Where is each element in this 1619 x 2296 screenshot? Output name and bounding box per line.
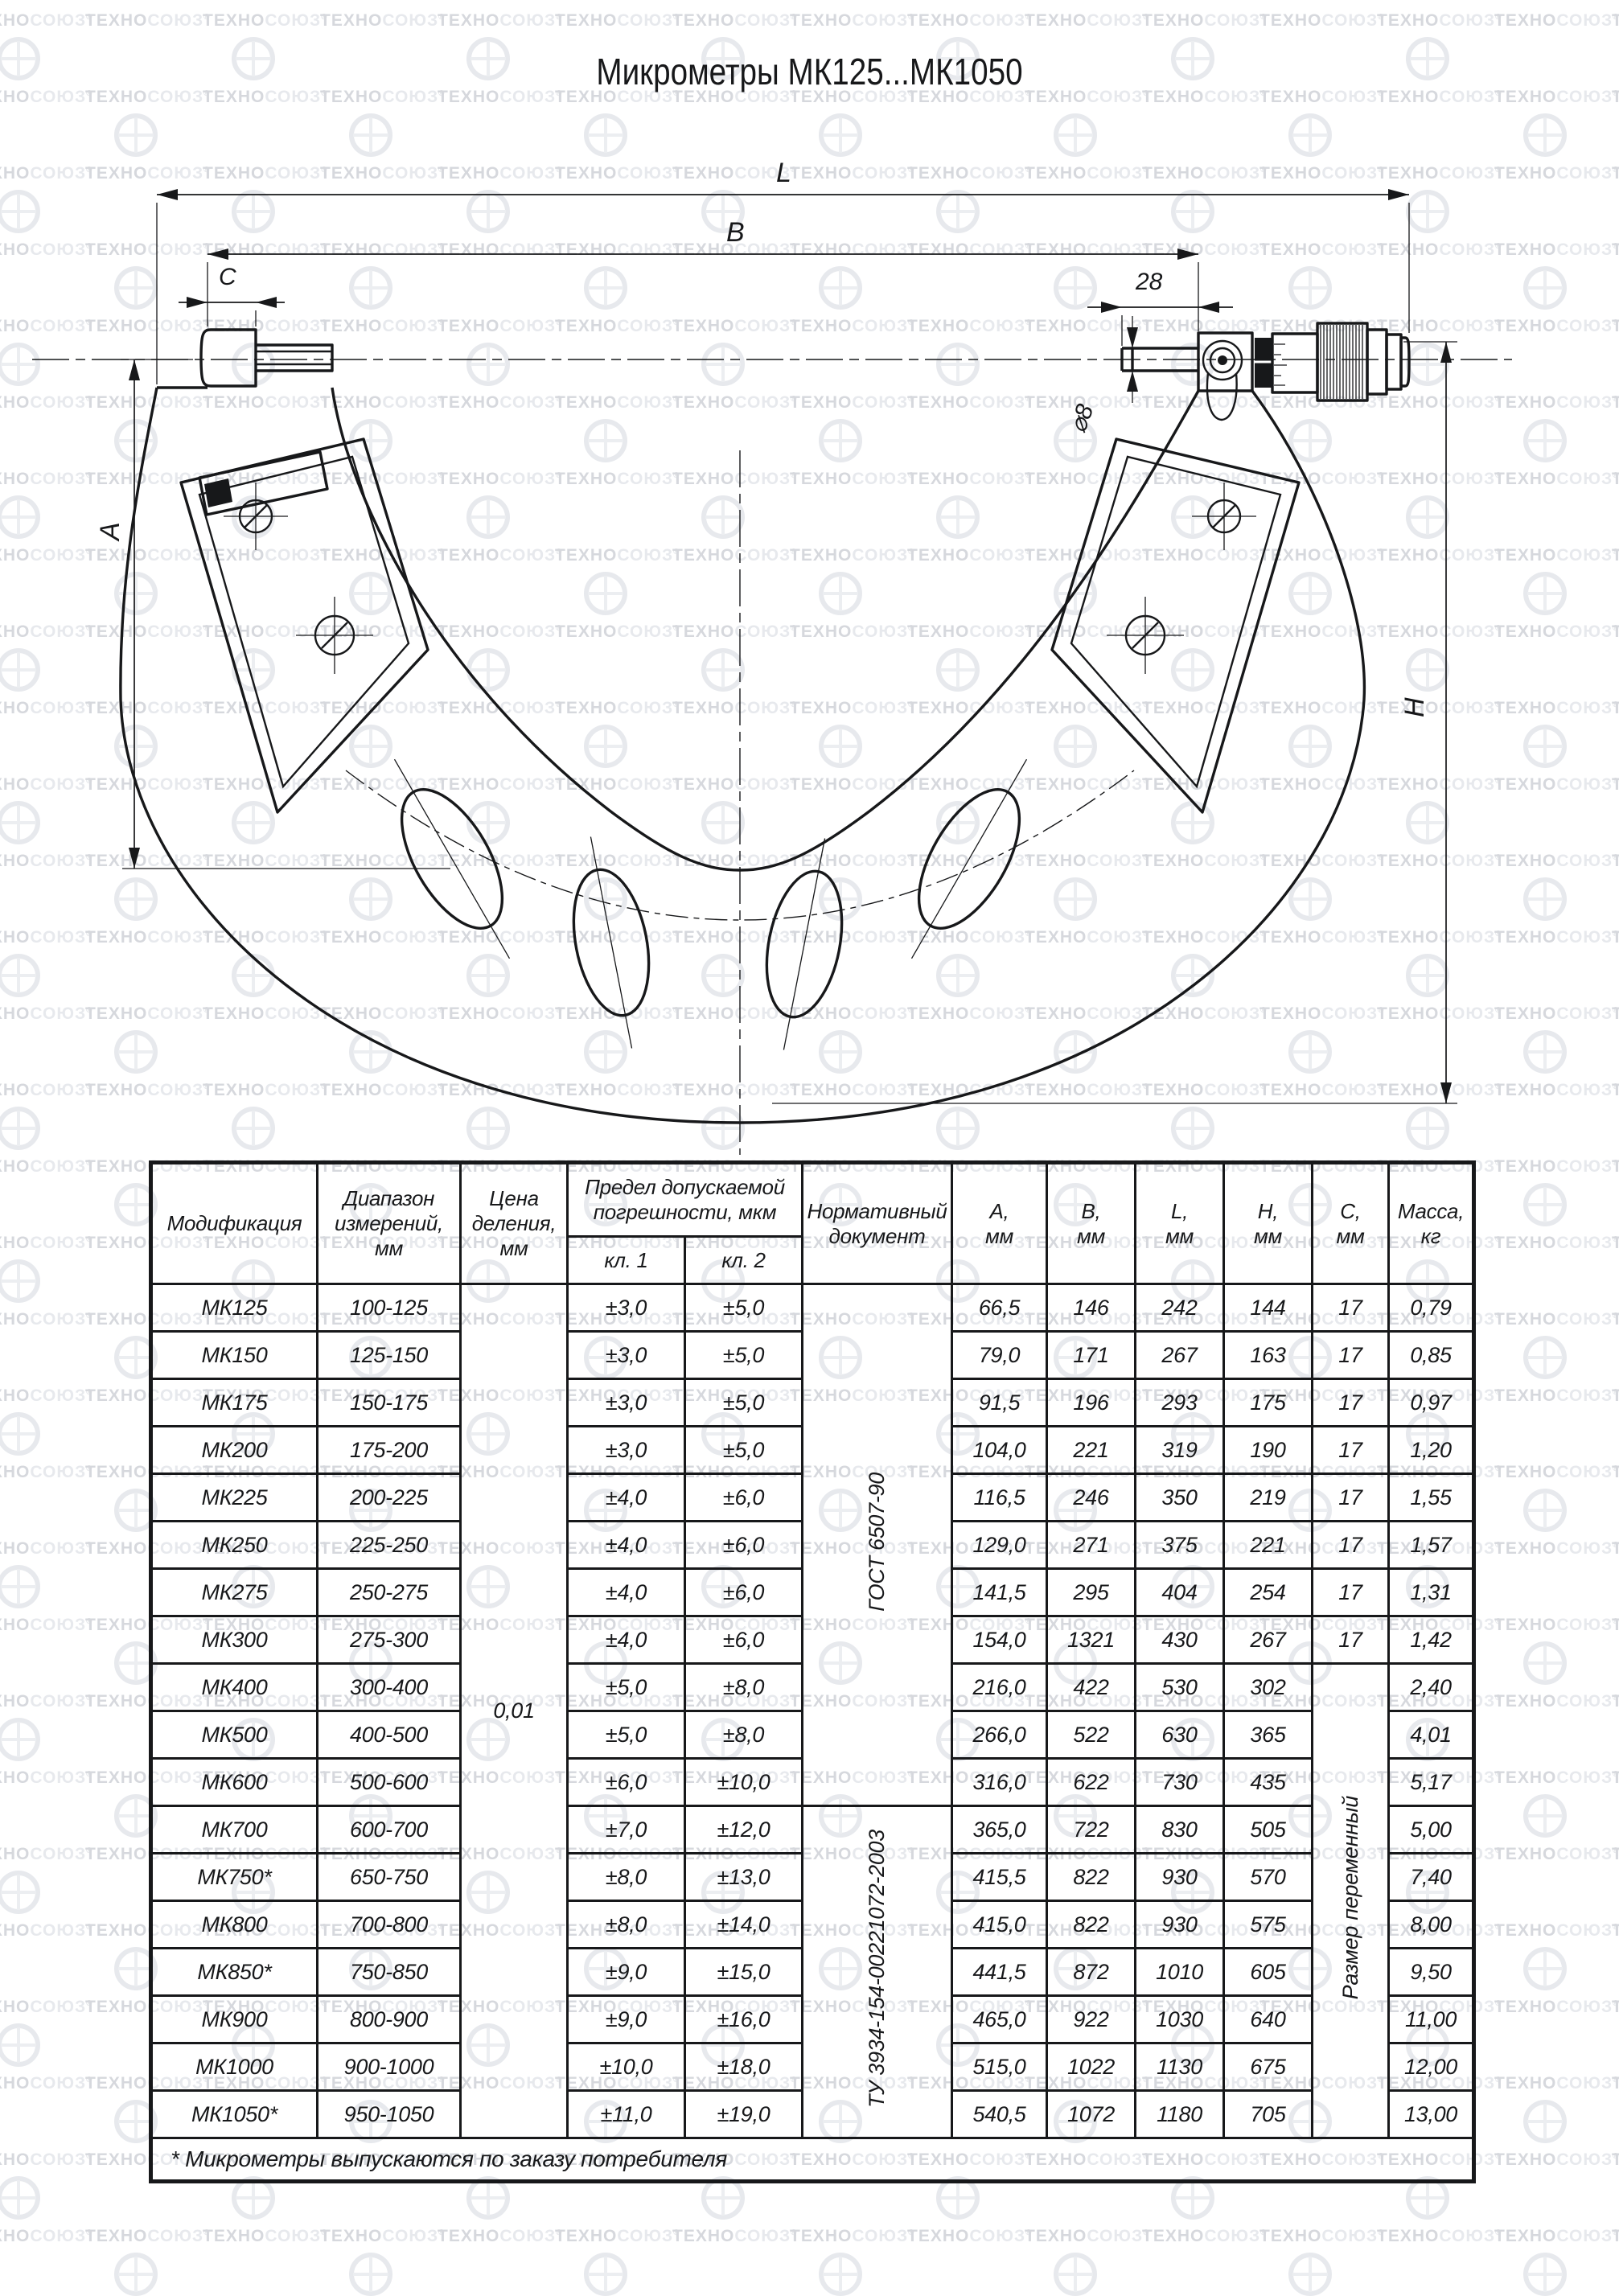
micrometer-technical-drawing: L B C 28 ⌀8 A H	[0, 113, 1619, 1166]
cell-class1: ±8,0	[568, 1901, 685, 1949]
cell-h: 605	[1224, 1949, 1313, 1996]
cell-class2: ±6,0	[685, 1569, 803, 1616]
cell-b: 822	[1047, 1854, 1136, 1901]
cell-model: МК275	[151, 1569, 318, 1616]
watermark-text: ТЕХНОСОЮЗ®	[85, 2227, 211, 2246]
cell-model: МК750*	[151, 1854, 318, 1901]
cell-b: 171	[1047, 1332, 1136, 1379]
cell-h: 175	[1224, 1379, 1313, 1427]
cell-h: 570	[1224, 1854, 1313, 1901]
watermark-text: ТЕХНОСОЮЗ®	[1494, 1310, 1619, 1329]
cell-l: 350	[1136, 1474, 1224, 1522]
watermark-text: ТЕХНОСОЮЗ®	[1494, 1616, 1619, 1635]
left-plate-inner	[199, 457, 409, 787]
table-row: МК700600-700±7,0±12,0ТУ 3934-154-0022107…	[151, 1806, 1474, 1854]
cell-model: МК1000	[151, 2043, 318, 2091]
watermark-globe-icon	[819, 2253, 862, 2296]
watermark-text: ТЕХНОСОЮЗ®	[320, 11, 446, 31]
thimble-collar	[1367, 330, 1387, 394]
watermark-globe-icon	[0, 37, 40, 80]
cell-range: 600-700	[318, 1806, 461, 1854]
cell-h: 163	[1224, 1332, 1313, 1379]
col-header-class1: кл. 1	[568, 1237, 685, 1284]
cell-h: 435	[1224, 1759, 1313, 1806]
cell-class2: ±8,0	[685, 1711, 803, 1759]
watermark-text: ТЕХНОСОЮЗ®	[1612, 1234, 1619, 1253]
cell-range: 750-850	[318, 1949, 461, 1996]
cell-range: 100-125	[318, 1284, 461, 1332]
frame-inner-contour	[332, 388, 1198, 870]
cell-a: 116,5	[952, 1474, 1047, 1522]
cell-l: 1130	[1136, 2043, 1224, 2091]
watermark-text: ТЕХНОСОЮЗ®	[1494, 2150, 1619, 2170]
watermark-text: ТЕХНОСОЮЗ®	[0, 2227, 93, 2246]
cell-h: 302	[1224, 1664, 1313, 1711]
watermark-globe-icon	[0, 1565, 40, 1608]
watermark-text: ТЕХНОСОЮЗ®	[555, 2227, 680, 2246]
cell-mass: 2,40	[1389, 1664, 1474, 1711]
dim-label-B: B	[726, 217, 745, 248]
watermark-text: ТЕХНОСОЮЗ®	[1612, 1310, 1619, 1329]
cell-mass: 4,01	[1389, 1711, 1474, 1759]
watermark-globe-icon	[0, 1412, 40, 1456]
watermark-text: ТЕХНОСОЮЗ®	[0, 2150, 93, 2170]
cell-range: 225-250	[318, 1522, 461, 1569]
watermark-globe-icon	[1523, 1336, 1567, 1379]
cell-l: 1180	[1136, 2091, 1224, 2138]
cell-range: 900-1000	[318, 2043, 461, 2091]
cell-l: 404	[1136, 1569, 1224, 1616]
frame-hole	[880, 741, 1059, 977]
cell-c: 17	[1313, 1474, 1389, 1522]
cell-a: 515,0	[952, 2043, 1047, 2091]
watermark-text: ТЕХНОСОЮЗ®	[0, 2074, 93, 2093]
watermark-text: ТЕХНОСОЮЗ®	[1494, 2074, 1619, 2093]
cell-range: 800-900	[318, 1996, 461, 2043]
watermark-text: ТЕХНОСОЮЗ®	[203, 2227, 328, 2246]
watermark-text: ТЕХНОСОЮЗ®	[1142, 11, 1268, 31]
watermark-text: ТЕХНОСОЮЗ®	[0, 1463, 93, 1482]
watermark-text: ТЕХНОСОЮЗ®	[1494, 1463, 1619, 1482]
cell-class1: ±7,0	[568, 1806, 685, 1854]
dim-label-A: A	[95, 522, 125, 542]
cell-range: 300-400	[318, 1664, 461, 1711]
watermark-globe-icon	[0, 1718, 40, 1761]
cell-h: 675	[1224, 2043, 1313, 2091]
lock-lever	[1203, 341, 1242, 420]
watermark-text: ТЕХНОСОЮЗ®	[0, 1310, 93, 1329]
cell-l: 242	[1136, 1284, 1224, 1332]
cell-mass: 1,57	[1389, 1522, 1474, 1569]
cell-model: МК150	[151, 1332, 318, 1379]
cell-c: 17	[1313, 1332, 1389, 1379]
watermark-text: ТЕХНОСОЮЗ®	[438, 2227, 563, 2246]
cell-range: 650-750	[318, 1854, 461, 1901]
cell-a: 415,5	[952, 1854, 1047, 1901]
cell-h: 221	[1224, 1522, 1313, 1569]
frame-hole	[749, 832, 860, 1057]
cell-mass: 11,00	[1389, 1996, 1474, 2043]
cell-model: МК300	[151, 1616, 318, 1664]
watermark-text: ТЕХНОСОЮЗ®	[907, 11, 1033, 31]
cell-range: 175-200	[318, 1427, 461, 1474]
watermark-globe-icon	[0, 1259, 40, 1303]
cell-a: 365,0	[952, 1806, 1047, 1854]
cell-model: МК200	[151, 1427, 318, 1474]
cell-b: 146	[1047, 1284, 1136, 1332]
watermark-globe-icon	[1054, 2253, 1097, 2296]
cell-class1: ±11,0	[568, 2091, 685, 2138]
cell-class1: ±4,0	[568, 1569, 685, 1616]
cell-a: 216,0	[952, 1664, 1047, 1711]
col-header-mass: Масса, кг	[1389, 1163, 1474, 1284]
cell-class1: ±3,0	[568, 1379, 685, 1427]
cell-mass: 8,00	[1389, 1901, 1474, 1949]
cell-l: 930	[1136, 1854, 1224, 1901]
anvil-rod-lines	[256, 351, 332, 364]
watermark-text: ТЕХНОСОЮЗ®	[1612, 2074, 1619, 2093]
ratchet-end-cap	[1401, 338, 1409, 386]
frame-hole	[556, 830, 667, 1055]
frame-outer-contour	[121, 388, 1365, 1123]
cell-class2: ±5,0	[685, 1427, 803, 1474]
watermark-text: ТЕХНОСОЮЗ®	[438, 11, 563, 31]
watermark-text: ТЕХНОСОЮЗ®	[1025, 11, 1150, 31]
cell-class1: ±3,0	[568, 1332, 685, 1379]
watermark-text: ТЕХНОСОЮЗ®	[0, 1234, 93, 1253]
cell-a: 316,0	[952, 1759, 1047, 1806]
cell-mass: 0,79	[1389, 1284, 1474, 1332]
cell-b: 522	[1047, 1711, 1136, 1759]
col-header-b: В, мм	[1047, 1163, 1136, 1284]
thimble	[1317, 323, 1367, 400]
table-header: Модификация Диапазон измерений, мм Цена …	[151, 1163, 1474, 1284]
cell-c: 17	[1313, 1379, 1389, 1427]
cell-class2: ±8,0	[685, 1664, 803, 1711]
cell-a: 129,0	[952, 1522, 1047, 1569]
cell-mass: 9,50	[1389, 1949, 1474, 1996]
watermark-text: ТЕХНОСОЮЗ®	[320, 2227, 446, 2246]
cell-class2: ±16,0	[685, 1996, 803, 2043]
watermark-globe-icon	[1523, 1947, 1567, 1990]
col-header-document: Нормативный документ	[803, 1163, 952, 1284]
merged-cell-division: 0,01	[461, 1284, 568, 2138]
cell-a: 266,0	[952, 1711, 1047, 1759]
table-body: МК125100-1250,01±3,0±5,0ГОСТ 6507-9066,5…	[151, 1284, 1474, 2138]
cell-c: 17	[1313, 1616, 1389, 1664]
watermark-text: ТЕХНОСОЮЗ®	[0, 1539, 93, 1559]
watermark-text: ТЕХНОСОЮЗ®	[1494, 1234, 1619, 1253]
cell-class1: ±10,0	[568, 2043, 685, 2091]
anvil-rod	[256, 345, 332, 371]
cell-mass: 1,55	[1389, 1474, 1474, 1522]
cell-l: 293	[1136, 1379, 1224, 1427]
cell-b: 822	[1047, 1901, 1136, 1949]
dim-label-spindle-dia: ⌀8	[1065, 400, 1099, 436]
brand-logo-mark	[204, 479, 232, 507]
watermark-text: ТЕХНОСОЮЗ®	[0, 1845, 93, 1864]
cell-b: 271	[1047, 1522, 1136, 1569]
cell-h: 705	[1224, 2091, 1313, 2138]
table-row: МК125100-1250,01±3,0±5,0ГОСТ 6507-9066,5…	[151, 1284, 1474, 1332]
watermark-globe-icon	[1523, 2253, 1567, 2296]
cell-a: 441,5	[952, 1949, 1047, 1996]
cell-class2: ±10,0	[685, 1759, 803, 1806]
cell-b: 872	[1047, 1949, 1136, 1996]
cell-range: 400-500	[318, 1711, 461, 1759]
watermark-text: ТЕХНОСОЮЗ®	[1494, 1998, 1619, 2017]
cell-b: 422	[1047, 1664, 1136, 1711]
cell-model: МК900	[151, 1996, 318, 2043]
cell-l: 630	[1136, 1711, 1224, 1759]
cell-mass: 5,00	[1389, 1806, 1474, 1854]
watermark-globe-icon	[114, 2253, 158, 2296]
thimble-knurling	[1321, 325, 1362, 399]
cell-model: МК1050*	[151, 2091, 318, 2138]
cell-class1: ±6,0	[568, 1759, 685, 1806]
watermark-text: ТЕХНОСОЮЗ®	[0, 1386, 93, 1406]
cell-h: 365	[1224, 1711, 1313, 1759]
cell-range: 700-800	[318, 1901, 461, 1949]
cell-mass: 12,00	[1389, 2043, 1474, 2091]
watermark-text: ТЕХНОСОЮЗ®	[1612, 88, 1619, 107]
watermark-text: ТЕХНОСОЮЗ®	[1612, 1845, 1619, 1864]
cell-model: МК800	[151, 1901, 318, 1949]
cell-h: 267	[1224, 1616, 1313, 1664]
cell-class1: ±3,0	[568, 1427, 685, 1474]
cell-a: 104,0	[952, 1427, 1047, 1474]
watermark-text: ТЕХНОСОЮЗ®	[907, 2227, 1033, 2246]
col-header-h: Н, мм	[1224, 1163, 1313, 1284]
watermark-globe-icon	[1523, 1489, 1567, 1532]
merged-cell-c-variable: Размер переменный	[1313, 1664, 1389, 2138]
watermark-globe-icon	[349, 2253, 392, 2296]
cell-h: 144	[1224, 1284, 1313, 1332]
cell-range: 125-150	[318, 1332, 461, 1379]
watermark-globe-icon	[1523, 1183, 1567, 1226]
cell-h: 254	[1224, 1569, 1313, 1616]
cell-mass: 13,00	[1389, 2091, 1474, 2138]
watermark-text: ТЕХНОСОЮЗ®	[1494, 88, 1619, 107]
watermark-text: ТЕХНОСОЮЗ®	[1494, 1692, 1619, 1711]
cell-c: 17	[1313, 1284, 1389, 1332]
watermark-text: ТЕХНОСОЮЗ®	[1259, 2227, 1385, 2246]
cell-b: 922	[1047, 1996, 1136, 2043]
cell-class2: ±6,0	[685, 1522, 803, 1569]
cell-mass: 0,97	[1389, 1379, 1474, 1427]
cell-class2: ±13,0	[685, 1854, 803, 1901]
cell-h: 640	[1224, 1996, 1313, 2043]
watermark-text: ТЕХНОСОЮЗ®	[1377, 2227, 1502, 2246]
cell-c: 17	[1313, 1522, 1389, 1569]
drum-tick-marks	[1274, 344, 1287, 385]
cell-a: 540,5	[952, 2091, 1047, 2138]
watermark-text: ТЕХНОСОЮЗ®	[203, 11, 328, 31]
watermark-text: ТЕХНОСОЮЗ®	[0, 1616, 93, 1635]
watermark-text: ТЕХНОСОЮЗ®	[85, 11, 211, 31]
cell-class1: ±4,0	[568, 1616, 685, 1664]
cell-b: 196	[1047, 1379, 1136, 1427]
cell-l: 1030	[1136, 1996, 1224, 2043]
cell-range: 150-175	[318, 1379, 461, 1427]
watermark-text: ТЕХНОСОЮЗ®	[672, 2227, 798, 2246]
watermark-text: ТЕХНОСОЮЗ®	[1494, 1845, 1619, 1864]
cell-l: 930	[1136, 1901, 1224, 1949]
watermark-text: ТЕХНОСОЮЗ®	[1612, 1921, 1619, 1941]
watermark-text: ТЕХНОСОЮЗ®	[1612, 1768, 1619, 1788]
cell-class1: ±5,0	[568, 1664, 685, 1711]
dim-label-28: 28	[1135, 269, 1163, 295]
anvil-block	[201, 330, 256, 386]
cell-l: 267	[1136, 1332, 1224, 1379]
col-header-error-limit: Предел допускаемой погрешности, мкм	[568, 1163, 803, 1237]
cell-h: 219	[1224, 1474, 1313, 1522]
cell-class2: ±5,0	[685, 1379, 803, 1427]
cell-range: 250-275	[318, 1569, 461, 1616]
specifications-table: Модификация Диапазон измерений, мм Цена …	[149, 1160, 1476, 2183]
cell-model: МК125	[151, 1284, 318, 1332]
watermark-globe-icon	[0, 2176, 40, 2220]
watermark-text: ТЕХНОСОЮЗ®	[1494, 2227, 1619, 2246]
cell-class1: ±3,0	[568, 1284, 685, 1332]
col-header-class2: кл. 2	[685, 1237, 803, 1284]
watermark-globe-icon	[0, 1871, 40, 1914]
cell-mass: 5,17	[1389, 1759, 1474, 1806]
cell-range: 500-600	[318, 1759, 461, 1806]
cell-range: 950-1050	[318, 2091, 461, 2138]
cell-class2: ±6,0	[685, 1616, 803, 1664]
screw	[1192, 483, 1256, 550]
cell-model: МК700	[151, 1806, 318, 1854]
watermark-text: ТЕХНОСОЮЗ®	[0, 1998, 93, 2017]
watermark-text: ТЕХНОСОЮЗ®	[0, 11, 93, 31]
screw	[224, 483, 288, 550]
page-title: Микрометры МК125...МК1050	[129, 50, 1490, 93]
watermark-globe-icon	[584, 2253, 627, 2296]
col-header-range: Диапазон измерений, мм	[318, 1163, 461, 1284]
watermark-text: ТЕХНОСОЮЗ®	[1612, 2227, 1619, 2246]
cell-class1: ±9,0	[568, 1949, 685, 1996]
cell-b: 1022	[1047, 2043, 1136, 2091]
cell-a: 141,5	[952, 1569, 1047, 1616]
cell-l: 830	[1136, 1806, 1224, 1854]
catalog-page: { "watermark": { "brand_left": "ТЕХНО", …	[0, 0, 1619, 2243]
cell-class2: ±14,0	[685, 1901, 803, 1949]
cell-model: МК250	[151, 1522, 318, 1569]
watermark-text: ТЕХНОСОЮЗ®	[1494, 1768, 1619, 1788]
cell-b: 221	[1047, 1427, 1136, 1474]
cell-class2: ±5,0	[685, 1332, 803, 1379]
cell-class2: ±19,0	[685, 2091, 803, 2138]
watermark-text: ТЕХНОСОЮЗ®	[672, 11, 798, 31]
cell-l: 1010	[1136, 1949, 1224, 1996]
col-header-c: С, мм	[1313, 1163, 1389, 1284]
watermark-text: ТЕХНОСОЮЗ®	[1612, 1539, 1619, 1559]
cell-range: 200-225	[318, 1474, 461, 1522]
cell-model: МК500	[151, 1711, 318, 1759]
watermark-text: ТЕХНОСОЮЗ®	[1494, 1386, 1619, 1406]
watermark-text: ТЕХНОСОЮЗ®	[0, 88, 93, 107]
cell-model: МК175	[151, 1379, 318, 1427]
cell-mass: 1,31	[1389, 1569, 1474, 1616]
cell-class2: ±5,0	[685, 1284, 803, 1332]
cell-a: 415,0	[952, 1901, 1047, 1949]
cell-h: 575	[1224, 1901, 1313, 1949]
dim-label-L: L	[776, 158, 791, 188]
cell-class2: ±18,0	[685, 2043, 803, 2091]
cell-b: 622	[1047, 1759, 1136, 1806]
cell-a: 154,0	[952, 1616, 1047, 1664]
cell-model: МК600	[151, 1759, 318, 1806]
col-header-division: Цена деления, мм	[461, 1163, 568, 1284]
watermark-text: ТЕХНОСОЮЗ®	[0, 1768, 93, 1788]
cell-l: 319	[1136, 1427, 1224, 1474]
screw	[1107, 597, 1184, 674]
watermark-text: ТЕХНОСОЮЗ®	[1612, 2150, 1619, 2170]
col-header-modification: Модификация	[151, 1163, 318, 1284]
dim-label-H: H	[1399, 697, 1430, 717]
watermark-globe-icon	[1523, 1794, 1567, 1838]
watermark-text: ТЕХНОСОЮЗ®	[1259, 11, 1385, 31]
col-header-l: L, мм	[1136, 1163, 1224, 1284]
cell-model: МК400	[151, 1664, 318, 1711]
watermark-globe-icon	[1288, 2253, 1332, 2296]
cell-b: 722	[1047, 1806, 1136, 1854]
cell-model: МК225	[151, 1474, 318, 1522]
watermark-text: ТЕХНОСОЮЗ®	[1612, 1692, 1619, 1711]
watermark-text: ТЕХНОСОЮЗ®	[790, 2227, 915, 2246]
cell-class2: ±12,0	[685, 1806, 803, 1854]
watermark-text: ТЕХНОСОЮЗ®	[1377, 11, 1502, 31]
dimension-lines	[121, 189, 1457, 1103]
col-header-a: А, мм	[952, 1163, 1047, 1284]
merged-cell-gost: ГОСТ 6507-90	[803, 1284, 952, 1806]
watermark-text: ТЕХНОСОЮЗ®	[1494, 1921, 1619, 1941]
watermark-text: ТЕХНОСОЮЗ®	[1612, 1998, 1619, 2017]
cell-l: 730	[1136, 1759, 1224, 1806]
screw	[296, 597, 373, 674]
cell-a: 465,0	[952, 1996, 1047, 2043]
cell-class1: ±9,0	[568, 1996, 685, 2043]
cell-class2: ±6,0	[685, 1474, 803, 1522]
watermark-globe-icon	[0, 2023, 40, 2067]
watermark-text: ТЕХНОСОЮЗ®	[1494, 11, 1619, 31]
cell-class1: ±5,0	[568, 1711, 685, 1759]
ratchet	[1387, 335, 1401, 389]
cell-a: 66,5	[952, 1284, 1047, 1332]
cell-class1: ±4,0	[568, 1522, 685, 1569]
cell-a: 79,0	[952, 1332, 1047, 1379]
cell-mass: 1,42	[1389, 1616, 1474, 1664]
watermark-globe-icon	[1523, 1641, 1567, 1685]
dim-label-C: C	[219, 264, 236, 290]
cell-c: 17	[1313, 1427, 1389, 1474]
watermark-text: ТЕХНОСОЮЗ®	[1612, 11, 1619, 31]
merged-cell-tu: ТУ 3934-154-00221072-2003	[803, 1806, 952, 2138]
cell-mass: 7,40	[1389, 1854, 1474, 1901]
watermark-text: ТЕХНОСОЮЗ®	[1612, 1463, 1619, 1482]
cell-b: 246	[1047, 1474, 1136, 1522]
cell-class2: ±15,0	[685, 1949, 803, 1996]
watermark-text: ТЕХНОСОЮЗ®	[1142, 2227, 1268, 2246]
scale-drum	[1272, 334, 1317, 392]
cell-l: 530	[1136, 1664, 1224, 1711]
watermark-text: ТЕХНОСОЮЗ®	[0, 1921, 93, 1941]
cell-h: 190	[1224, 1427, 1313, 1474]
right-plate-outer	[1052, 439, 1299, 812]
cell-model: МК850*	[151, 1949, 318, 1996]
cell-b: 295	[1047, 1569, 1136, 1616]
